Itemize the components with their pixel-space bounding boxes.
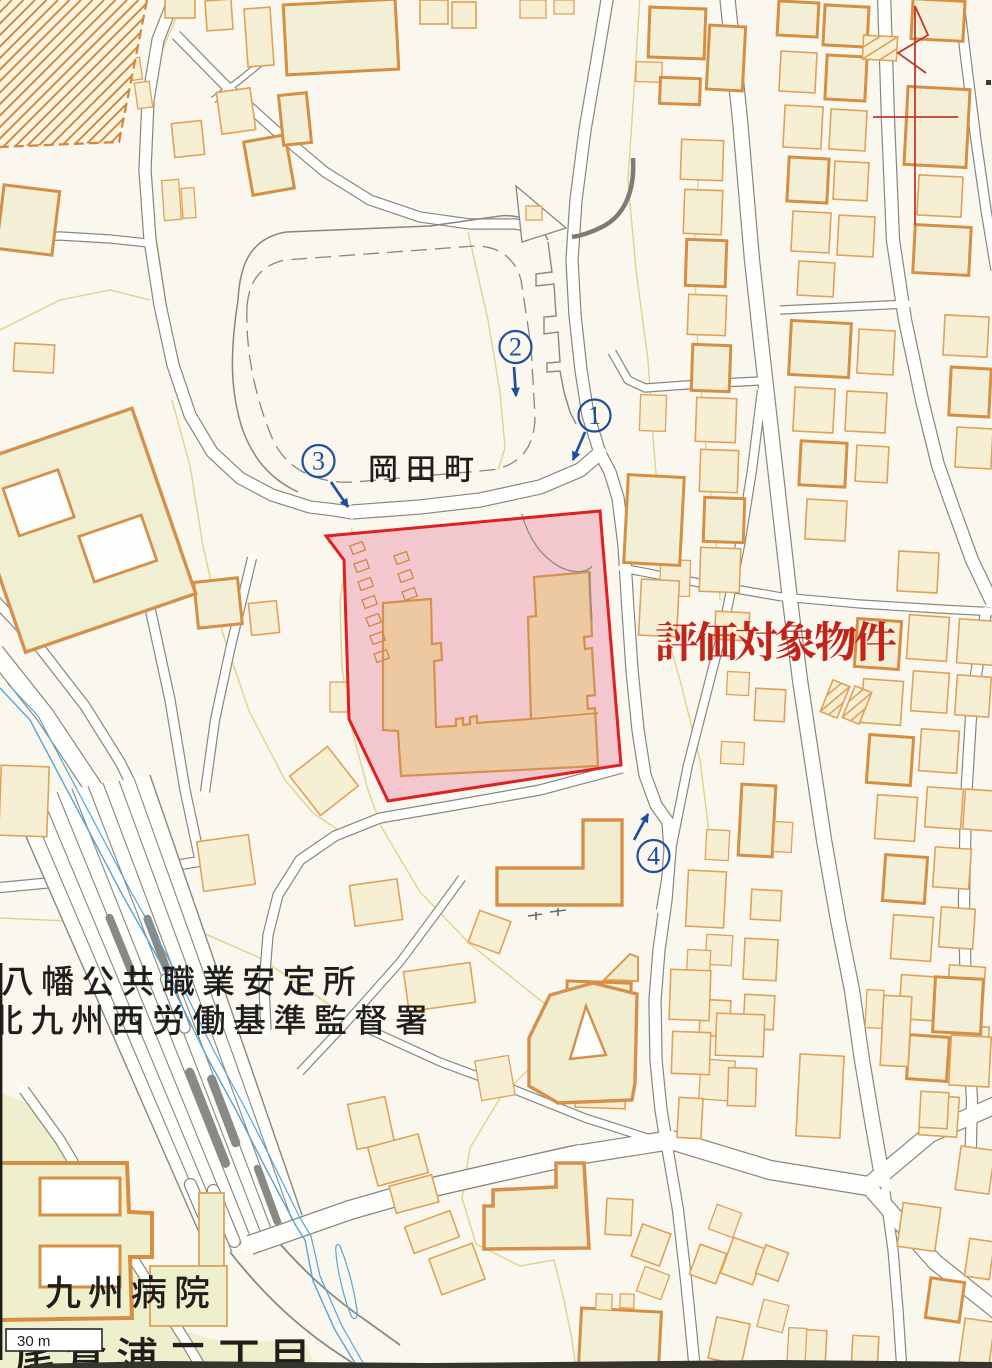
svg-text:3: 3	[312, 447, 325, 476]
svg-text:30 m: 30 m	[17, 1333, 50, 1350]
svg-text:2: 2	[509, 333, 522, 362]
svg-text:4: 4	[647, 842, 660, 871]
svg-text:1: 1	[588, 401, 601, 430]
